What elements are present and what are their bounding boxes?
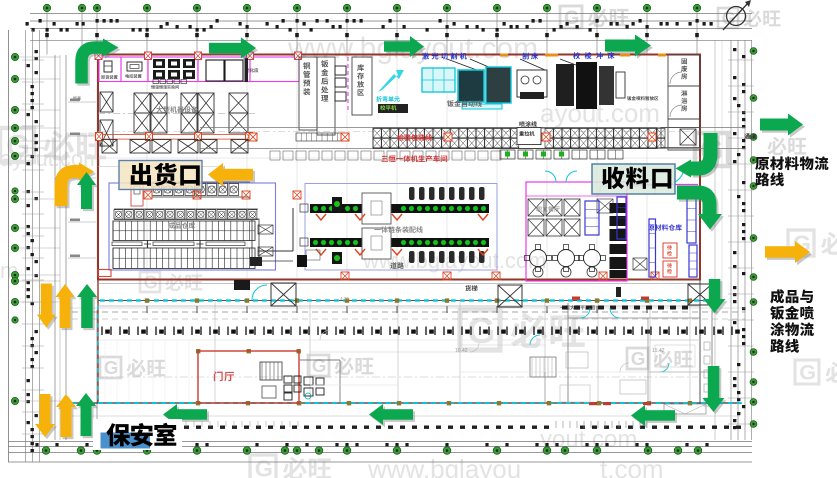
svg-text:t.com: t.com — [600, 454, 664, 478]
svg-text:yout.com: yout.com — [540, 426, 637, 453]
svg-text:G: G — [799, 360, 816, 385]
svg-text:G: G — [255, 455, 273, 478]
svg-text:10.42: 10.42 — [455, 348, 468, 354]
svg-text:www.bglayou: www.bglayou — [367, 454, 521, 478]
svg-text:15.42: 15.42 — [652, 348, 665, 354]
svg-text:G: G — [144, 272, 158, 292]
svg-text:4.20: 4.20 — [340, 296, 349, 301]
svg-text:G: G — [104, 358, 119, 379]
svg-text:G: G — [312, 356, 327, 377]
svg-text:G: G — [631, 349, 646, 370]
